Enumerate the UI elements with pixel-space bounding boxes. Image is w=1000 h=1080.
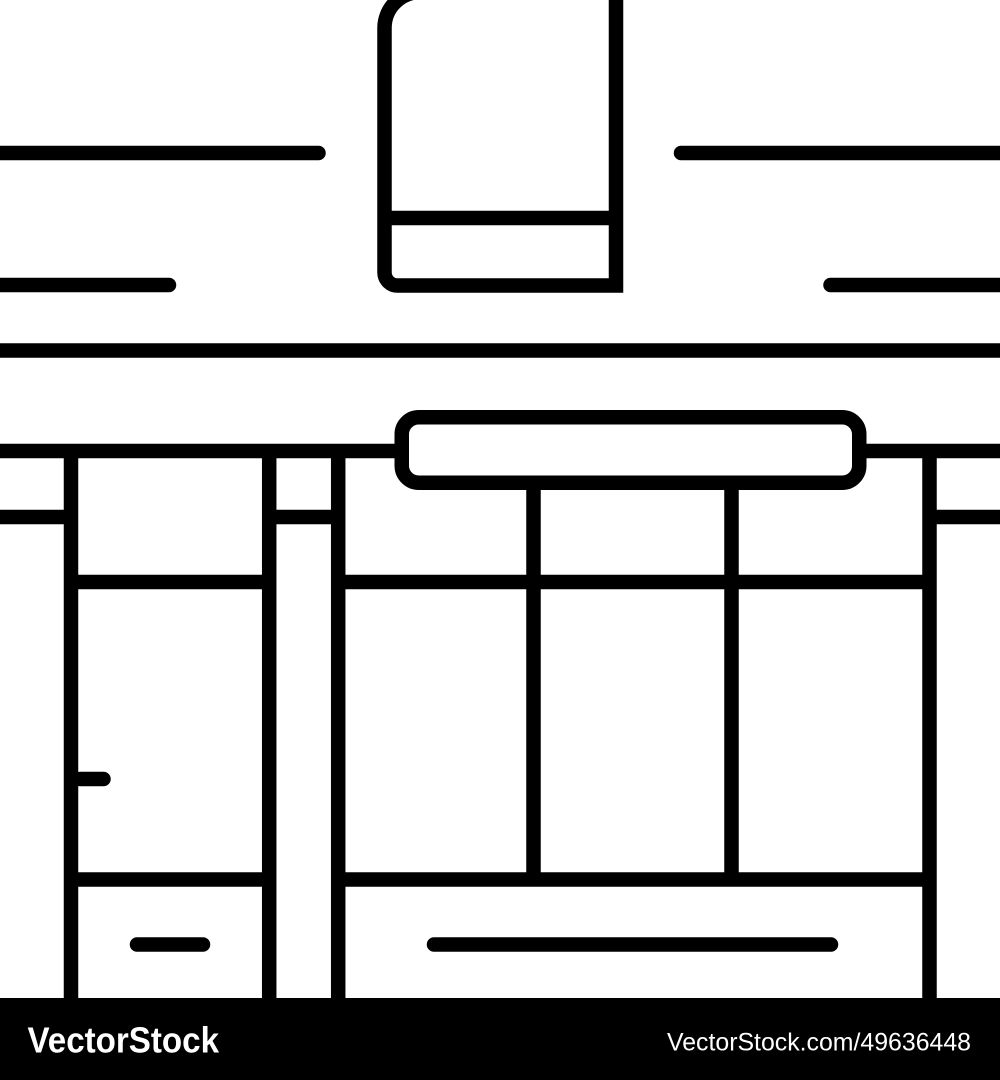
svg-text:VectorStock.com/49636448: VectorStock.com/49636448	[667, 1030, 971, 1057]
svg-text:VectorStock: VectorStock	[28, 1020, 220, 1061]
